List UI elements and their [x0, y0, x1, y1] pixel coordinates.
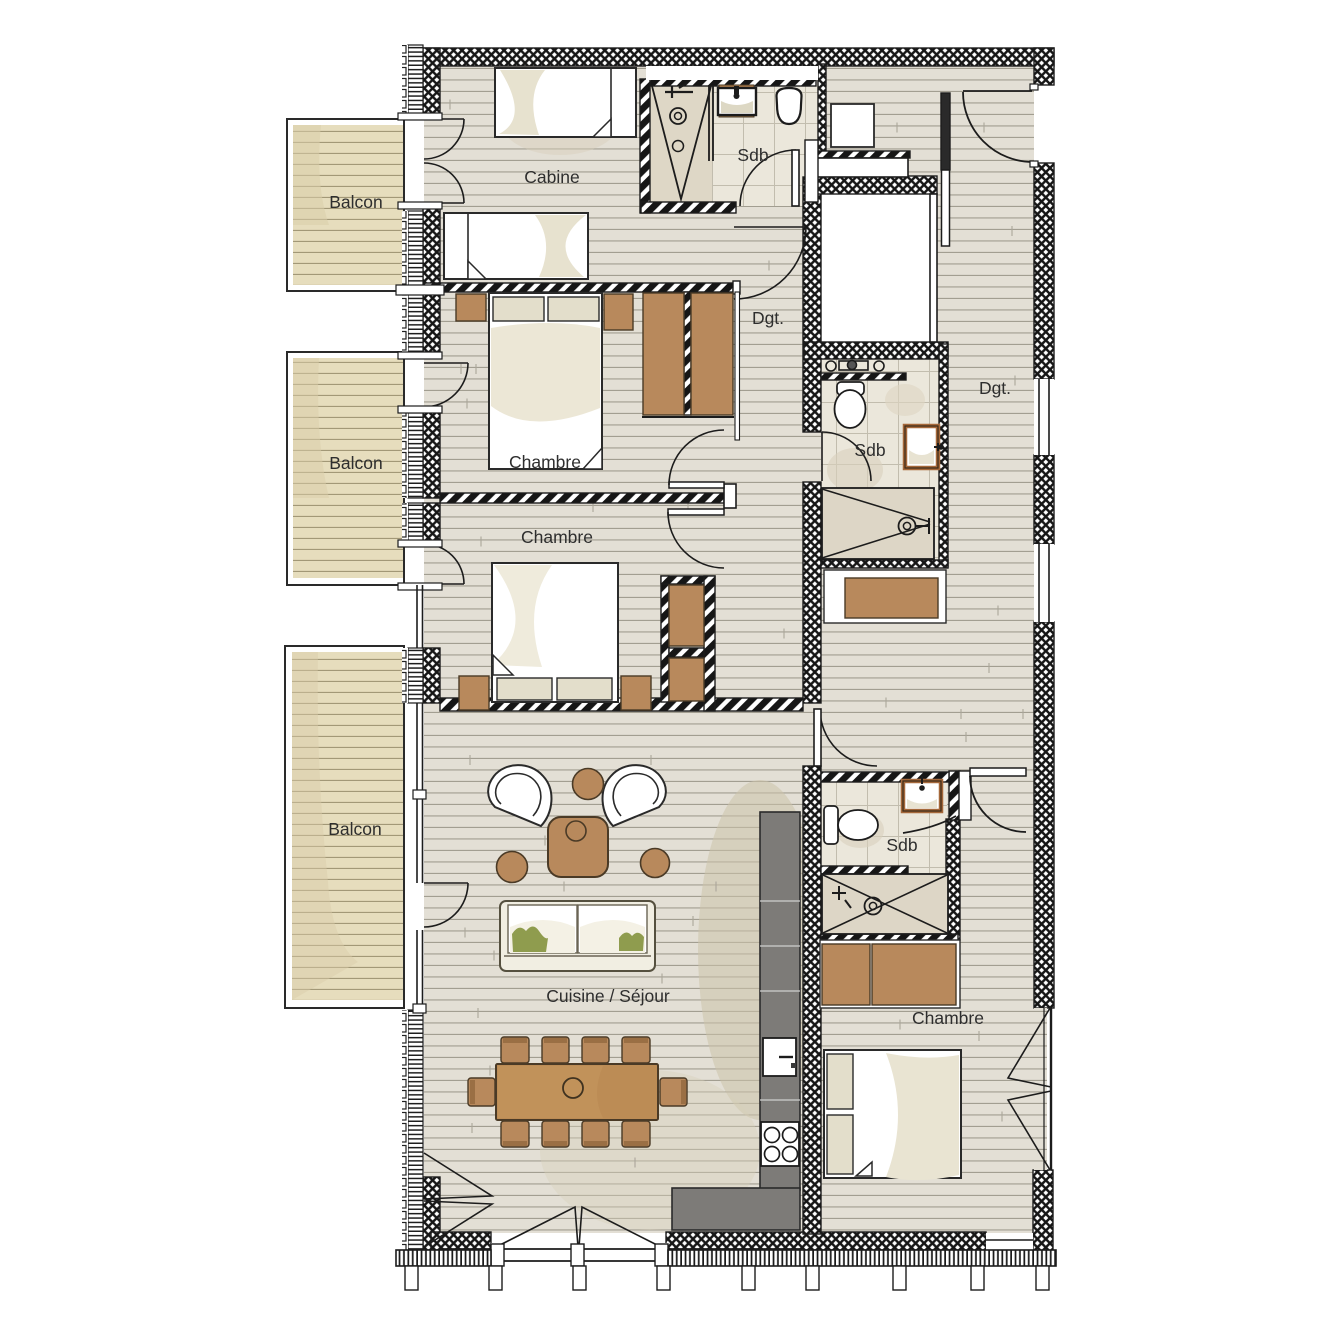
svg-text:Sdb: Sdb	[737, 145, 768, 165]
svg-text:Dgt.: Dgt.	[752, 308, 784, 328]
svg-text:Balcon: Balcon	[329, 453, 383, 473]
svg-text:Balcon: Balcon	[328, 819, 382, 839]
svg-text:Sdb: Sdb	[886, 835, 917, 855]
svg-text:Cabine: Cabine	[524, 167, 579, 187]
svg-text:Chambre: Chambre	[521, 527, 593, 547]
svg-text:Balcon: Balcon	[329, 192, 383, 212]
svg-text:Dgt.: Dgt.	[979, 378, 1011, 398]
svg-text:Sdb: Sdb	[854, 440, 885, 460]
svg-text:Chambre: Chambre	[509, 452, 581, 472]
svg-text:Cuisine / Séjour: Cuisine / Séjour	[546, 986, 670, 1006]
svg-text:Chambre: Chambre	[912, 1008, 984, 1028]
